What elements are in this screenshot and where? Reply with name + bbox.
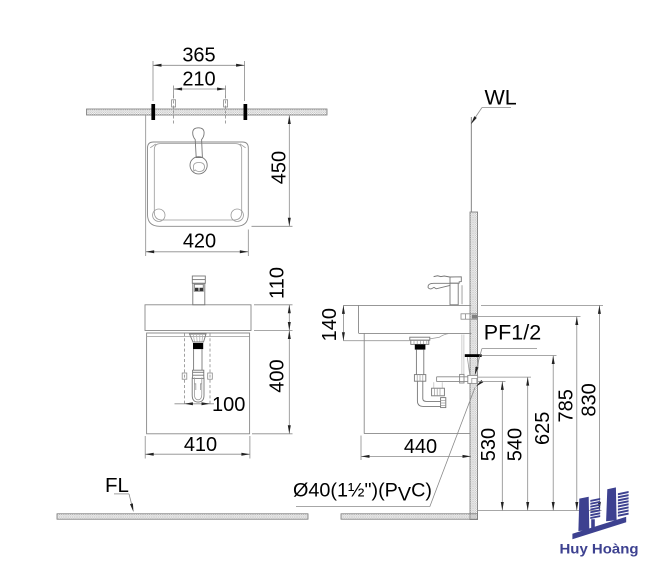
svg-text:830: 830: [579, 383, 601, 416]
svg-text:785: 785: [556, 389, 578, 422]
svg-text:400: 400: [266, 359, 288, 392]
svg-text:100: 100: [212, 394, 245, 416]
svg-text:540: 540: [505, 428, 527, 461]
svg-text:450: 450: [269, 151, 291, 184]
svg-text:140: 140: [319, 308, 341, 341]
svg-text:PF1/2: PF1/2: [484, 320, 541, 344]
svg-text:440: 440: [404, 436, 437, 458]
svg-text:410: 410: [184, 434, 217, 456]
svg-text:Huy Hoàng: Huy Hoàng: [560, 542, 639, 557]
svg-text:110: 110: [266, 267, 288, 299]
svg-text:365: 365: [182, 45, 215, 67]
svg-text:625: 625: [532, 412, 554, 445]
svg-text:WL: WL: [485, 86, 517, 110]
svg-text:210: 210: [182, 69, 215, 91]
svg-text:530: 530: [478, 428, 500, 461]
svg-text:Ø40(1½")(PVC): Ø40(1½")(PVC): [293, 480, 432, 506]
svg-text:420: 420: [183, 231, 216, 253]
